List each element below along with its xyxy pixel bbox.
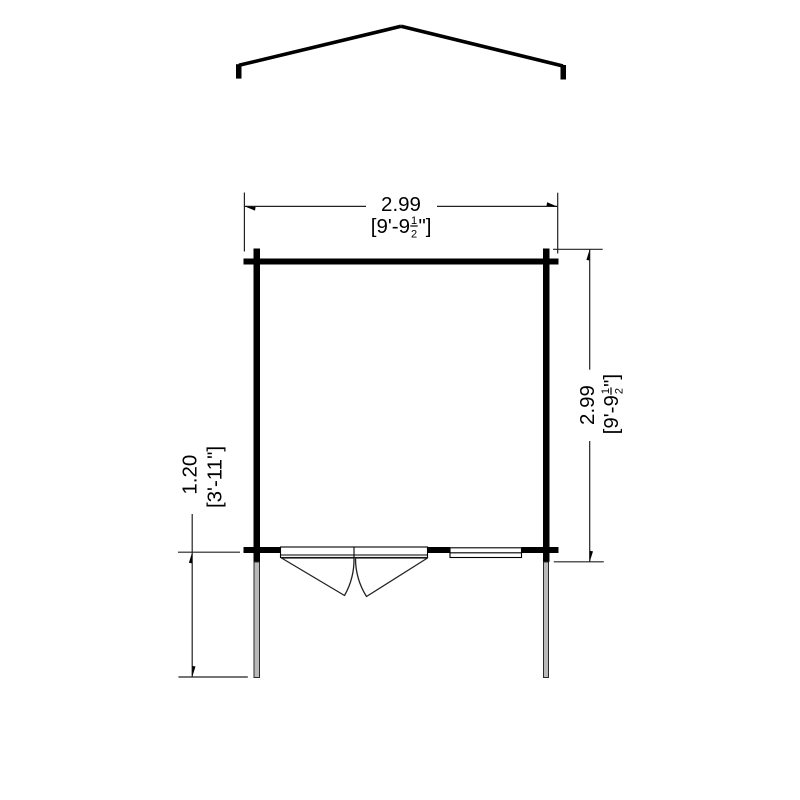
svg-text:"]: "] — [419, 215, 432, 238]
svg-text:[9'-9: [9'-9 — [371, 215, 410, 238]
svg-text:2: 2 — [614, 388, 626, 394]
svg-text:"]: "] — [600, 374, 623, 387]
svg-text:1: 1 — [600, 388, 612, 394]
svg-text:2.99: 2.99 — [576, 385, 599, 425]
svg-text:1.20: 1.20 — [179, 455, 202, 495]
svg-text:2.99: 2.99 — [381, 193, 421, 216]
svg-text:2: 2 — [411, 229, 417, 241]
svg-text:[3'-11"]: [3'-11"] — [204, 446, 227, 508]
svg-text:[9'-9: [9'-9 — [600, 395, 623, 434]
svg-text:1: 1 — [411, 215, 417, 227]
